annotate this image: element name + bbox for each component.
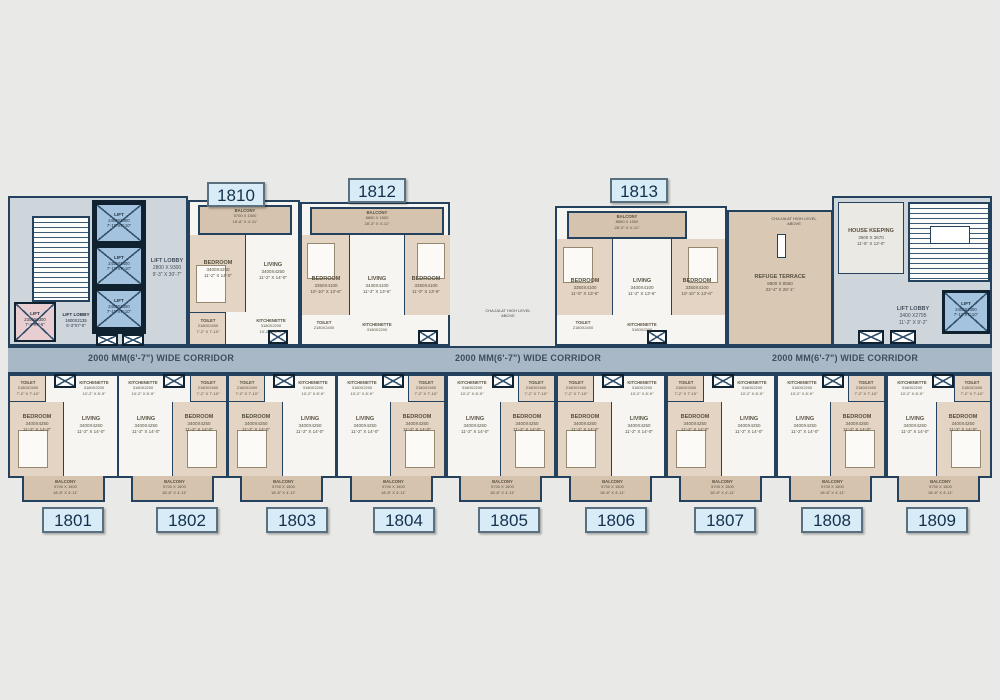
lift-2-label: LIFT 2400X2400 7'-10"X7'-10" — [95, 255, 143, 271]
bed — [951, 430, 981, 468]
toilet-label: TOILET2180X24007'-2" X 7'-10" — [668, 380, 704, 396]
unit-tag-1804: 1804 — [373, 507, 435, 533]
unit-1812-bedroom1 — [302, 235, 350, 315]
bedroom-label: BEDROOM3400X425011'-2" X 14'-0" — [172, 414, 226, 433]
balcony-1809: BALCONY5700 X 150018'-8" X 4'-11" — [897, 476, 980, 502]
duct-shaft — [492, 374, 514, 388]
toilet-label: TOILET2180X24007'-2" X 7'-10" — [190, 380, 226, 396]
toilet-label: TOILET2180X24007'-2" X 7'-10" — [848, 380, 884, 396]
kitchenette-label: KITCHENETTE3180X220010'-2" X 8'-9" — [72, 380, 116, 396]
left-staircase — [32, 216, 90, 302]
unit-1807: TOILET2180X24007'-2" X 7'-10" KITCHENETT… — [666, 374, 776, 478]
kitchenette-label: KITCHENETTE3180X220010'-2" X 8'-9" — [890, 380, 934, 396]
duct-shaft — [858, 330, 884, 344]
unit-1813-bedroom1-label: BEDROOM 3350X4100 11'-0" X 13'-6" — [557, 278, 613, 297]
duct-shaft — [932, 374, 954, 388]
balcony-1804: BALCONY5700 X 150018'-8" X 4'-11" — [350, 476, 433, 502]
toilet-label: TOILET2180X24007'-2" X 7'-10" — [10, 380, 46, 396]
balcony-1806: BALCONY5700 X 150018'-8" X 4'-11" — [569, 476, 652, 502]
unit-1805: TOILET2180X24007'-2" X 7'-10" KITCHENETT… — [446, 374, 556, 478]
bedroom-label: BEDROOM3400X425011'-2" X 14'-0" — [229, 414, 283, 433]
kitchenette-label: KITCHENETTE3180X220010'-2" X 8'-9" — [620, 380, 664, 396]
living-label: LIVING3400X425011'-2" X 14'-0" — [614, 416, 664, 435]
unit-1808: TOILET2180X24007'-2" X 7'-10" KITCHENETT… — [776, 374, 886, 478]
kitchenette-label: KITCHENETTE3180X220010'-2" X 8'-9" — [730, 380, 774, 396]
balcony-1802: BALCONY5700 X 150018'-8" X 4'-11" — [131, 476, 214, 502]
unit-1812-bedroom2-label: BEDROOM 3350X4100 11'-0" X 13'-6" — [402, 276, 450, 295]
floor-plan-page: 2000 MM(6'-7") WIDE CORRIDOR 2000 MM(6'-… — [0, 0, 1000, 700]
right-lift-lobby-label: LIFT LOBBY 3400 X2795 11'-2" X 9'-2" — [886, 306, 940, 326]
duct-shaft — [163, 374, 185, 388]
toilet-label: TOILET2180X24007'-2" X 7'-10" — [229, 380, 265, 396]
unit-tag-1802: 1802 — [156, 507, 218, 533]
chajja-note: CHAJJA AT HIGH LEVEL ABOVE — [468, 308, 548, 318]
bed — [18, 430, 48, 468]
lift-3-label: LIFT 2400X2400 7'-10"X7'-10" — [95, 298, 143, 314]
unit-tag-1813: 1813 — [610, 178, 668, 203]
bedroom-label: BEDROOM3400X425011'-2" X 14'-0" — [668, 414, 722, 433]
bed — [405, 430, 435, 468]
unit-1802: TOILET2180X24007'-2" X 7'-10" KITCHENETT… — [117, 374, 228, 478]
unit-1812-bedroom1-label: BEDROOM 3350X4100 10'-10" X 13'-6" — [302, 276, 350, 295]
bed — [307, 243, 335, 279]
bed — [417, 243, 445, 279]
refuge-terrace: CHAJJA AT HIGH LEVEL ABOVE REFUGE TERRAC… — [727, 210, 833, 346]
unit-tag-1801: 1801 — [42, 507, 104, 533]
balcony-1801: BALCONY5700 X 150018'-8" X 4'-11" — [22, 476, 105, 502]
toilet-label: TOILET2180X24007'-2" X 7'-10" — [518, 380, 554, 396]
corridor-label-left: 2000 MM(6'-7") WIDE CORRIDOR — [88, 353, 234, 363]
unit-1806: TOILET2180X24007'-2" X 7'-10" KITCHENETT… — [556, 374, 666, 478]
bedroom-label: BEDROOM3400X425011'-2" X 14'-0" — [390, 414, 444, 433]
unit-1813-toilet-label: TOILET 2180X2400 — [563, 320, 603, 331]
corridor-label-middle: 2000 MM(6'-7") WIDE CORRIDOR — [455, 353, 601, 363]
left-lift-shaft: LIFT 2400X2400 7'-10"X7'-10" LIFT 2400X2… — [92, 200, 146, 334]
refuge-note: CHAJJA AT HIGH LEVEL ABOVE — [759, 216, 829, 226]
unit-1813-bedroom2 — [671, 239, 725, 315]
duct-shaft — [122, 334, 144, 346]
right-lift-label: LIFT 2400X2400 7'-10"X7'-10" — [942, 301, 990, 317]
left-core: LIFT 2400X2400 7'-10"X7'-10" LIFT 2400X2… — [8, 196, 188, 346]
toilet-label: TOILET2180X24007'-2" X 7'-10" — [558, 380, 594, 396]
balcony-1808: BALCONY5700 X 150018'-8" X 4'-11" — [789, 476, 872, 502]
unit-tag-1806: 1806 — [585, 507, 647, 533]
bed — [515, 430, 545, 468]
toilet-label: TOILET2180X24007'-2" X 7'-10" — [408, 380, 444, 396]
refuge-label: REFUGE TERRACE 6800 X 8550 22'-4" X 28'-… — [729, 274, 831, 293]
unit-1810-bedroom-label: BEDROOM 3400X4250 11'-2" X 14'-0" — [190, 260, 246, 279]
unit-1813: BALCONY 8650 X 1500 28'-3" X 4'-11" BEDR… — [555, 206, 727, 346]
unit-1813-bedroom1 — [557, 239, 613, 315]
unit-1810-kitchenette-label: KITCHENETTE 3180X2200 10'-2" X 8'-9" — [248, 318, 294, 334]
right-core: HOUSE KEEPING 3500 X 3670 11'-6" X 12'-0… — [832, 196, 992, 346]
unit-tag-1807: 1807 — [694, 507, 756, 533]
unit-1810-balcony-label: BALCONY 5700 X 1500 18'-8" X 4'-11" — [198, 208, 292, 224]
living-label: LIVING3400X425011'-2" X 14'-0" — [66, 416, 116, 435]
unit-tag-1808: 1808 — [801, 507, 863, 533]
unit-1812-balcony-label: BALCONY 8650 X 1500 28'-3" X 4'-11" — [310, 210, 444, 226]
unit-1812-kitchenette-label: KITCHENETTE 3180X2200 — [354, 322, 400, 333]
unit-1812: BALCONY 8650 X 1500 28'-3" X 4'-11" BEDR… — [300, 202, 450, 346]
duct-shaft — [382, 374, 404, 388]
bed — [676, 430, 706, 468]
balcony-1807: BALCONY5700 X 150018'-8" X 4'-11" — [679, 476, 762, 502]
unit-tag-1803: 1803 — [266, 507, 328, 533]
duct-shaft — [822, 374, 844, 388]
unit-tag-1809: 1809 — [906, 507, 968, 533]
kitchenette-label: KITCHENETTE3180X220010'-2" X 8'-9" — [450, 380, 494, 396]
duct-shaft — [890, 330, 916, 344]
bedroom-label: BEDROOM3400X425011'-2" X 14'-0" — [936, 414, 990, 433]
duct-shaft — [96, 334, 118, 346]
refuge-window — [777, 234, 786, 258]
kitchenette-label: KITCHENETTE3180X220010'-2" X 8'-9" — [121, 380, 165, 396]
unit-1810-living-label: LIVING 3400X4250 11'-2" X 14'-0" — [248, 262, 298, 281]
duct-shaft — [418, 330, 438, 344]
unit-1803: TOILET2180X24007'-2" X 7'-10" KITCHENETT… — [227, 374, 337, 478]
kitchenette-label: KITCHENETTE3180X220010'-2" X 8'-9" — [291, 380, 335, 396]
house-keeping-label: HOUSE KEEPING 3500 X 3670 11'-6" X 12'-0… — [838, 228, 904, 247]
bed — [566, 430, 596, 468]
unit-1813-balcony-label: BALCONY 8650 X 1500 28'-3" X 4'-11" — [567, 214, 687, 230]
living-label: LIVING3400X425011'-2" X 14'-0" — [724, 416, 774, 435]
bed — [845, 430, 875, 468]
bed — [187, 430, 217, 468]
unit-1809: TOILET2180X24007'-2" X 7'-10" KITCHENETT… — [886, 374, 992, 478]
living-label: LIVING3400X425011'-2" X 14'-0" — [340, 416, 390, 435]
unit-1812-living-label: LIVING 3430X4100 11'-2" X 13'-6" — [352, 276, 402, 295]
bedroom-label: BEDROOM3400X425011'-2" X 14'-0" — [558, 414, 612, 433]
kitchenette-label: KITCHENETTE3180X220010'-2" X 8'-9" — [780, 380, 824, 396]
unit-1813-bedroom2-label: BEDROOM 3350X4100 10'-10" X 13'-6" — [669, 278, 725, 297]
living-label: LIVING3400X425011'-2" X 14'-0" — [121, 416, 171, 435]
bedroom-label: BEDROOM3400X425011'-2" X 14'-0" — [500, 414, 554, 433]
unit-1812-bedroom2 — [404, 235, 450, 315]
unit-1810: BALCONY 5700 X 1500 18'-8" X 4'-11" BEDR… — [188, 200, 300, 346]
lift-1-label: LIFT 2400X2400 7'-10"X7'-10" — [95, 212, 143, 228]
living-label: LIVING3400X425011'-2" X 14'-0" — [450, 416, 500, 435]
living-label: LIVING3400X425011'-2" X 14'-0" — [780, 416, 830, 435]
unit-tag-1805: 1805 — [478, 507, 540, 533]
living-label: LIVING3400X425011'-2" X 14'-0" — [285, 416, 335, 435]
unit-1813-living-label: LIVING 3400X4100 11'-2" X 13'-6" — [615, 278, 669, 297]
unit-1804: TOILET2180X24007'-2" X 7'-10" KITCHENETT… — [336, 374, 446, 478]
toilet-label: TOILET2180X24007'-2" X 7'-10" — [954, 380, 990, 396]
left-lift-lobby-label: LIFT LOBBY 2800 X 9300 9'-3" X 30'-7" — [144, 258, 190, 278]
unit-tag-1812: 1812 — [348, 178, 406, 203]
unit-1812-toilet-label: TOILET 2180X2400 — [304, 320, 344, 331]
service-lift-lobby-label: LIFT LOBBY 1600X2135 5'-3"X7'-0" — [58, 312, 94, 328]
unit-1813-kitchenette-label: KITCHENETTE 3180X2200 — [617, 322, 667, 333]
bed — [237, 430, 267, 468]
corridor-label-right: 2000 MM(6'-7") WIDE CORRIDOR — [772, 353, 918, 363]
unit-1810-toilet-label: TOILET 2180X2400 7'-2" X 7'-10" — [190, 318, 226, 334]
bedroom-label: BEDROOM3400X425011'-2" X 14'-0" — [10, 414, 64, 433]
unit-1801: TOILET2180X24007'-2" X 7'-10" KITCHENETT… — [8, 374, 119, 478]
bedroom-label: BEDROOM3400X425011'-2" X 14'-0" — [830, 414, 884, 433]
stair-landing — [930, 226, 970, 244]
kitchenette-label: KITCHENETTE3180X220010'-2" X 8'-9" — [340, 380, 384, 396]
service-lift-label: LIFT 2300X2300 7'-4"X7'-6" — [14, 311, 56, 327]
unit-tag-1810: 1810 — [207, 182, 265, 207]
living-label: LIVING3400X425011'-2" X 14'-0" — [890, 416, 940, 435]
balcony-1803: BALCONY5700 X 150018'-8" X 4'-11" — [240, 476, 323, 502]
balcony-1805: BALCONY5700 X 150018'-8" X 4'-11" — [459, 476, 542, 502]
